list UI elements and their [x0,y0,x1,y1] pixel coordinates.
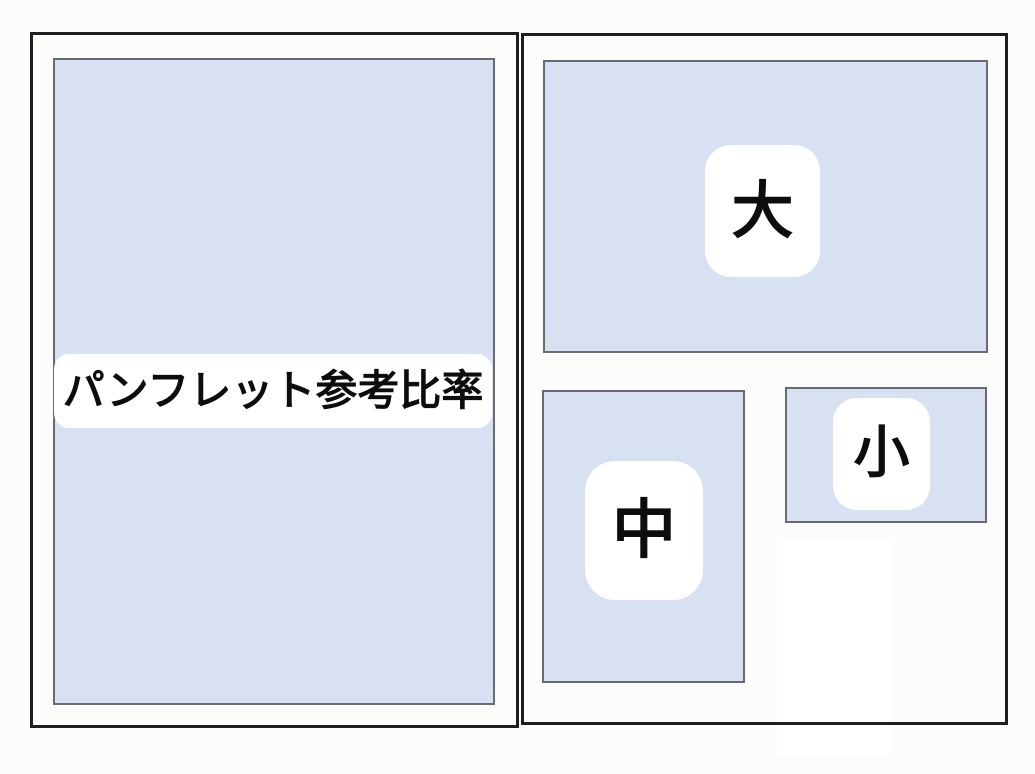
pamphlet-size-ratio-diagram: パンフレット参考比率 大 中 小 [0,0,1035,774]
size-medium-label: 中 [585,461,703,600]
size-small-sheet: 小 [785,387,987,523]
size-medium-sheet: 中 [542,390,745,683]
size-large-sheet: 大 [543,60,988,353]
size-large-label: 大 [705,145,820,277]
reference-ratio-label: パンフレット参考比率 [54,354,492,428]
right-frame: 大 中 小 [521,33,1008,725]
size-small-label: 小 [833,398,930,510]
left-frame: パンフレット参考比率 [30,32,519,728]
